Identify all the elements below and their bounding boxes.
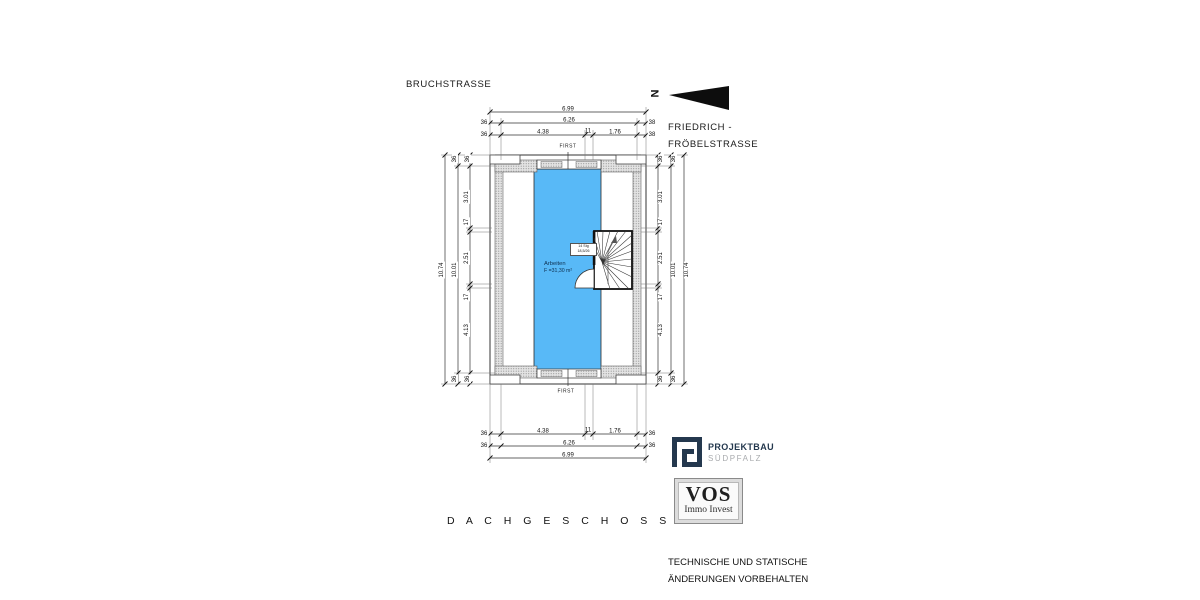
dim-label: 4.38 [536, 428, 550, 434]
dim-label: 36 [480, 132, 489, 138]
projektbau-subtitle: SÜDPFALZ [708, 455, 762, 463]
dim-label: 10.74 [684, 261, 690, 278]
disclaimer-line1: TECHNISCHE UND STATISCHE [668, 555, 808, 572]
north-letter: N [650, 90, 661, 98]
dim-label: 36 [480, 443, 489, 449]
dim-label: 6.99 [561, 106, 575, 112]
dim-label: 6.26 [562, 117, 576, 123]
stair-note-line2: 18,5/26 [571, 249, 596, 254]
street-label-friedrich-froebelstrasse: FRIEDRICH - FRÖBELSTRASSE [668, 119, 758, 153]
dim-label: 36 [671, 155, 677, 164]
disclaimer-line2: ÄNDERUNGEN VORBEHALTEN [668, 572, 808, 589]
dim-label: 1.76 [608, 129, 622, 135]
ridge-label-bottom: FIRST [558, 390, 575, 395]
vos-title: VOS [679, 484, 738, 505]
ridge-label-top: FIRST [560, 145, 577, 150]
dim-label: 36 [452, 375, 458, 384]
dim-label: 2.51 [464, 251, 470, 265]
room-label: Arbeiten F =31,30 m² [544, 261, 572, 275]
dim-label: 36 [480, 120, 489, 126]
dim-label: 10.74 [439, 261, 445, 278]
north-arrow-icon [669, 86, 729, 110]
room-name: Arbeiten [544, 261, 572, 268]
dim-label: 36 [465, 155, 471, 164]
dim-label: 36 [671, 375, 677, 384]
dim-label: 3.01 [658, 190, 664, 204]
dim-label: 17 [464, 293, 470, 302]
disclaimer-text: TECHNISCHE UND STATISCHE ÄNDERUNGEN VORB… [668, 555, 808, 588]
vos-logo: VOS Immo Invest [674, 478, 743, 524]
stair-note: 14 Stg 18,5/26 [570, 243, 597, 256]
dim-label: 10.01 [671, 261, 677, 278]
dim-label: 3.01 [464, 190, 470, 204]
floor-title: D A C H G E S C H O S S [447, 516, 671, 527]
dim-label: 11 [584, 427, 592, 433]
floorplan-drawing [0, 0, 1200, 600]
dim-label: 38 [648, 132, 657, 138]
stair [593, 231, 632, 289]
dim-label: 17 [658, 218, 664, 227]
dim-label: 17 [464, 218, 470, 227]
dim-label: 2.51 [658, 251, 664, 265]
dim-label: 1.76 [608, 428, 622, 434]
dim-label: 36 [480, 431, 489, 437]
vos-subtitle: Immo Invest [679, 506, 738, 516]
dim-label: 38 [648, 120, 657, 126]
dim-label: 36 [648, 431, 657, 437]
dim-label: 36 [658, 375, 664, 384]
projektbau-title: PROJEKTBAU [708, 443, 774, 452]
street-label-bruchstrasse: BRUCHSTRASSE [406, 76, 491, 93]
dim-label: 6.99 [561, 452, 575, 458]
dim-label: 4.13 [658, 323, 664, 337]
room-area: F =31,30 m² [544, 268, 572, 275]
floorplan-page: BRUCHSTRASSE FRIEDRICH - FRÖBELSTRASSE N… [0, 0, 1200, 600]
dim-label: 36 [452, 155, 458, 164]
dim-label: 11 [584, 128, 592, 134]
dim-label: 36 [465, 375, 471, 384]
dim-label: 17 [658, 293, 664, 302]
dim-label: 10.01 [452, 261, 458, 278]
dim-label: 6.26 [562, 440, 576, 446]
street-line-2: FRÖBELSTRASSE [668, 136, 758, 153]
dim-label: 4.38 [536, 129, 550, 135]
dim-label: 36 [658, 155, 664, 164]
street-line-1: FRIEDRICH - [668, 119, 758, 136]
dim-label: 4.13 [464, 323, 470, 337]
dim-label: 36 [648, 443, 657, 449]
vos-logo-inner: VOS Immo Invest [678, 482, 739, 520]
